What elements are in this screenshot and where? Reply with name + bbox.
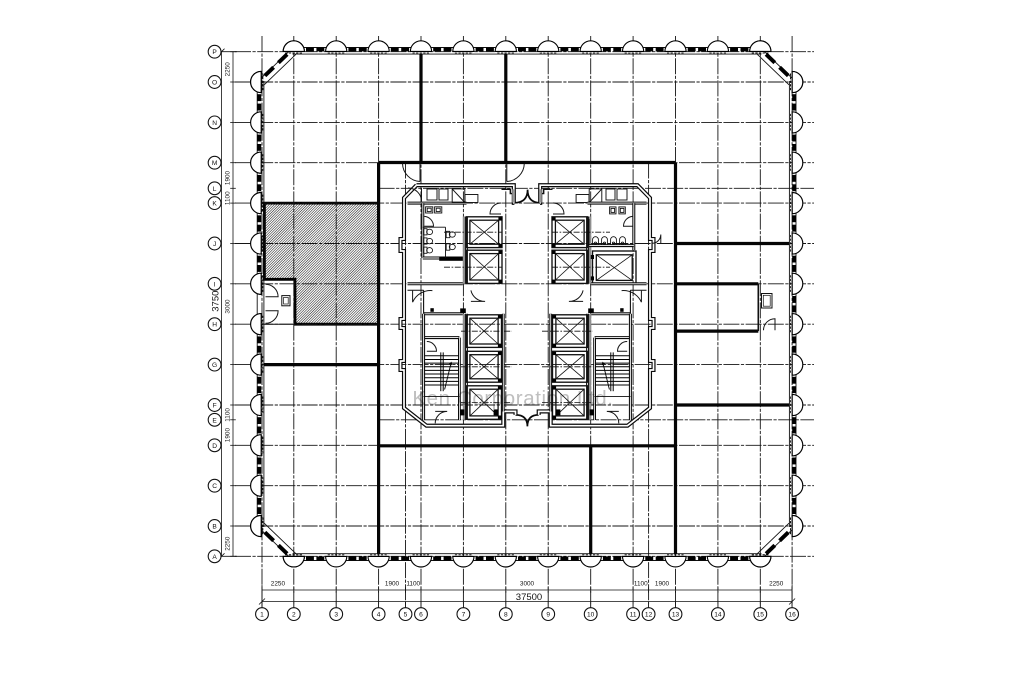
svg-text:10: 10 [587,612,595,619]
svg-text:11: 11 [630,612,637,619]
svg-text:G: G [212,362,217,369]
svg-text:2250: 2250 [769,580,784,587]
svg-text:E: E [212,417,217,424]
svg-text:14: 14 [714,612,722,619]
svg-text:I: I [214,281,216,288]
svg-text:1100: 1100 [634,580,648,587]
svg-text:3: 3 [334,612,338,619]
svg-text:5: 5 [404,612,408,619]
svg-text:1100: 1100 [406,580,420,587]
svg-text:2: 2 [292,612,296,619]
svg-text:16: 16 [788,612,796,619]
svg-text:2250: 2250 [271,580,286,587]
svg-text:3000: 3000 [520,580,535,587]
svg-text:15: 15 [757,612,765,619]
svg-text:O: O [212,80,217,87]
svg-text:3000: 3000 [225,299,232,314]
svg-text:1900: 1900 [385,580,400,587]
svg-text:M: M [212,160,218,167]
svg-text:P: P [212,49,217,56]
svg-text:7: 7 [462,612,466,619]
svg-text:1: 1 [260,612,264,619]
svg-text:A: A [212,554,217,561]
svg-text:1100: 1100 [225,191,232,205]
svg-text:1900: 1900 [655,580,670,587]
svg-text:Ken Corporation Ltd.: Ken Corporation Ltd. [412,387,613,410]
svg-text:H: H [212,322,217,329]
svg-text:1900: 1900 [225,428,232,443]
svg-text:8: 8 [504,612,508,619]
svg-text:2250: 2250 [225,536,232,551]
svg-text:N: N [212,120,217,127]
svg-text:4: 4 [377,612,381,619]
svg-text:K: K [212,201,217,208]
svg-text:B: B [212,524,217,531]
svg-text:C: C [212,483,217,490]
svg-text:1100: 1100 [225,408,232,422]
svg-text:J: J [213,241,216,248]
svg-text:F: F [213,403,217,410]
svg-text:L: L [213,186,217,193]
svg-text:D: D [212,443,217,450]
svg-text:9: 9 [546,612,550,619]
svg-text:2250: 2250 [225,62,232,77]
svg-text:6: 6 [419,612,423,619]
svg-text:37500: 37500 [516,592,542,603]
svg-text:1900: 1900 [225,170,232,185]
svg-text:12: 12 [645,612,653,619]
svg-text:13: 13 [672,612,680,619]
